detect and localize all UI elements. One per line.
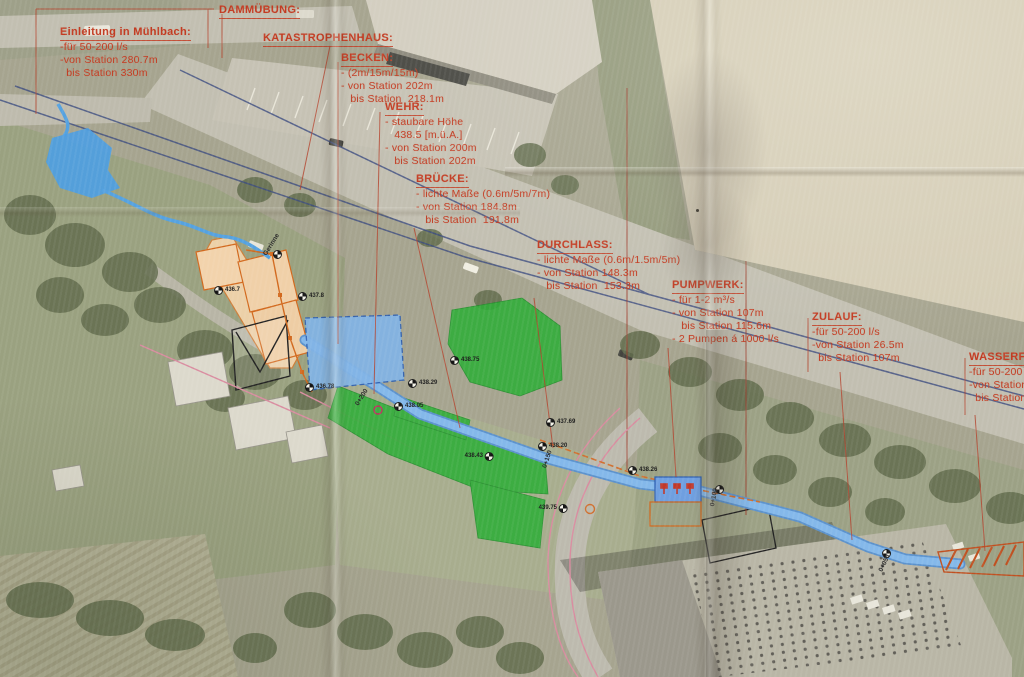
benchmark-icon: [485, 452, 494, 461]
annotation-dammuebung: DAMMÜBUNG:: [219, 2, 300, 19]
annotation-title: KATASTROPHENHAUS:: [263, 32, 393, 47]
survey-marker: 436.78: [305, 383, 334, 391]
survey-marker: 437.8: [298, 292, 324, 300]
survey-marker: 438.26: [628, 466, 657, 474]
annotation-line: - (2m/15m/15m): [341, 67, 444, 80]
annotation-wasserfassung: WASSERFA-für 50-200 l-von Station bis St…: [969, 349, 1024, 405]
benchmark-icon: [559, 504, 568, 513]
benchmark-icon: [214, 286, 223, 295]
survey-marker: 439.75: [539, 504, 568, 512]
annotation-durchlass: DURCHLASS:- lichte Maße (0.6m/1.5m/5m)- …: [537, 237, 680, 293]
survey-marker: 437.69: [546, 418, 575, 426]
survey-marker: 438.20: [538, 442, 567, 450]
annotation-line: bis Station 115.6m: [672, 320, 779, 333]
triangle-structure-outline: [232, 316, 290, 390]
benchmark-icon: [394, 402, 403, 411]
annotation-line: 438.5 [m.ü.A.]: [385, 129, 477, 142]
annotation-line: -für 50-200 l/s: [60, 41, 191, 54]
annotation-title: DURCHLASS:: [537, 239, 613, 254]
elevation-value: 438.20: [549, 443, 567, 449]
annotation-becken: BECKEN:- (2m/15m/15m)- von Station 202m …: [341, 50, 444, 106]
annotation-line: - von Station 107m: [672, 307, 779, 320]
annotation-line: bis Station 191.8m: [416, 214, 550, 227]
survey-marker: 438.29: [408, 379, 437, 387]
annotation-line: - von Station 202m: [341, 80, 444, 93]
elevation-value: 436.7: [225, 287, 240, 293]
benchmark-icon: [628, 466, 637, 475]
annotation-line: - lichte Maße (0.6m/1.5m/5m): [537, 254, 680, 267]
annotation-zulauf: ZULAUF:-für 50-200 l/s-von Station 26.5m…: [812, 309, 904, 365]
elevation-value: 438.26: [639, 467, 657, 473]
elevation-value: 438.05: [405, 403, 423, 409]
benchmark-icon: [408, 379, 417, 388]
benchmark-icon: [305, 383, 314, 392]
annotation-title: BRÜCKE:: [416, 173, 469, 188]
survey-marker: 438.05: [394, 402, 423, 410]
annotation-bruecke: BRÜCKE:- lichte Maße (0.6m/5m/7m)- von S…: [416, 171, 550, 227]
survey-marker: [273, 250, 282, 258]
annotation-line: - von Station 148.3m: [537, 267, 680, 280]
annotation-line: bis Station 202m: [385, 155, 477, 168]
elevation-value: 438.29: [419, 380, 437, 386]
annotation-line: - von Station 200m: [385, 142, 477, 155]
annotation-line: bis Station 330m: [60, 67, 191, 80]
annotation-line: bis Station: [969, 392, 1024, 405]
annotation-line: -von Station 26.5m: [812, 339, 904, 352]
paper-speck: [696, 209, 699, 212]
elevation-value: 437.69: [557, 419, 575, 425]
annotation-line: - 2 Pumpen á 1000 l/s: [672, 333, 779, 346]
annotation-title: WASSERFA: [969, 351, 1024, 366]
left-road-branch: [0, 94, 152, 126]
annotation-einleitung: Einleitung in Mühlbach:-für 50-200 l/s-v…: [60, 24, 191, 80]
folded-plan-photo: Einleitung in Mühlbach:-für 50-200 l/s-v…: [0, 0, 1024, 677]
annotation-title: PUMPWERK:: [672, 279, 744, 294]
annotation-line: bis Station 107m: [812, 352, 904, 365]
elevation-value: 437.8: [309, 293, 324, 299]
elevation-value: 439.75: [539, 505, 557, 511]
benchmark-icon: [450, 356, 459, 365]
annotation-pumpwerk: PUMPWERK:- für 1-2 m³/s- von Station 107…: [672, 277, 779, 346]
survey-marker: 438.43: [465, 452, 494, 460]
annotation-line: - für 1-2 m³/s: [672, 294, 779, 307]
annotation-title: BECKEN:: [341, 52, 393, 67]
annotation-title: WEHR:: [385, 101, 424, 116]
elevation-value: 438.75: [461, 357, 479, 363]
benchmark-icon: [546, 418, 555, 427]
annotation-line: -für 50-200 l: [969, 366, 1024, 379]
annotation-wehr: WEHR:- staubare Höhe 438.5 [m.ü.A.]- von…: [385, 99, 477, 168]
annotation-line: bis Station 153.3m: [537, 280, 680, 293]
annotation-line: - staubare Höhe: [385, 116, 477, 129]
survey-marker: 436.7: [214, 286, 240, 294]
annotation-line: - von Station 184.8m: [416, 201, 550, 214]
annotation-title: Einleitung in Mühlbach:: [60, 26, 191, 41]
annotation-line: -für 50-200 l/s: [812, 326, 904, 339]
retention-basin: [305, 315, 404, 390]
annotation-line: -von Station 280.7m: [60, 54, 191, 67]
elevation-value: 436.78: [316, 384, 334, 390]
annotation-katastrophenhaus: KATASTROPHENHAUS:: [263, 30, 393, 47]
benchmark-icon: [298, 292, 307, 301]
annotation-line: - lichte Maße (0.6m/5m/7m): [416, 188, 550, 201]
survey-marker: 438.75: [450, 356, 479, 364]
farm-building-1: [196, 244, 244, 290]
annotation-title: DAMMÜBUNG:: [219, 4, 300, 19]
elevation-value: 438.43: [465, 453, 483, 459]
annotation-line: -von Station: [969, 379, 1024, 392]
benchmark-icon: [538, 442, 547, 451]
benchmark-icon: [273, 250, 282, 259]
annotation-title: ZULAUF:: [812, 311, 862, 326]
